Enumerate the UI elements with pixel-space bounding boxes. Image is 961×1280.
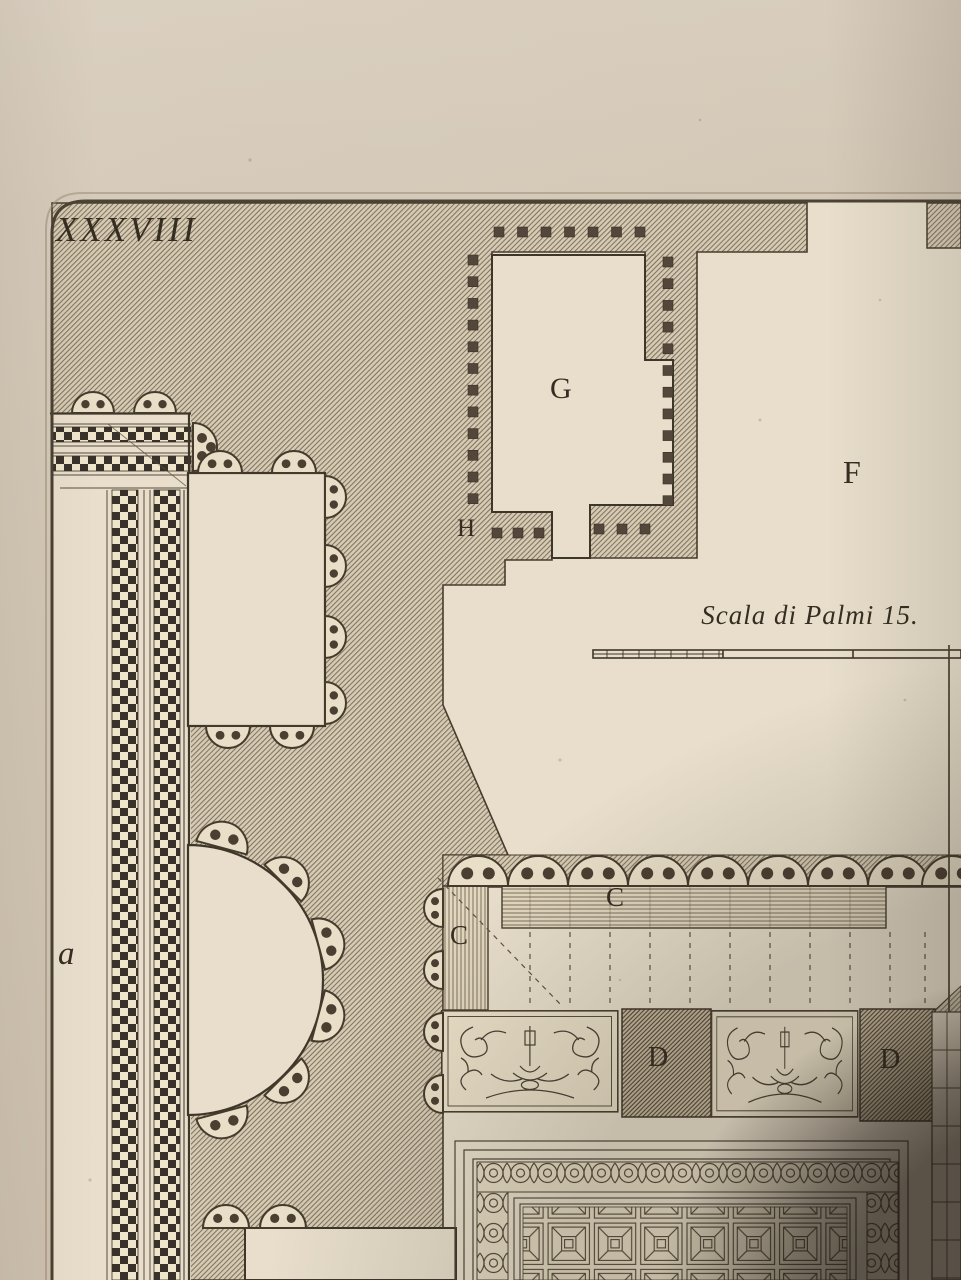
scale-bar xyxy=(593,650,961,658)
room-label-c-left: C xyxy=(450,922,468,949)
column-dot xyxy=(663,366,673,376)
mosaic-border-band xyxy=(52,456,191,471)
column-dot xyxy=(663,279,673,289)
room-label-f: F xyxy=(843,456,861,488)
column-dot xyxy=(513,528,523,538)
column-dot xyxy=(468,320,478,330)
room-label-c-band: C xyxy=(606,884,624,911)
column-dot xyxy=(617,524,627,534)
column-dot xyxy=(663,300,673,310)
ornament-panel xyxy=(442,1011,618,1112)
column-dot xyxy=(468,472,478,482)
column-dot xyxy=(635,227,645,237)
column-dot xyxy=(612,227,622,237)
column-dot xyxy=(468,277,478,287)
column-dot xyxy=(663,387,673,397)
guilloche-band-left xyxy=(477,1192,508,1280)
side-room-outline xyxy=(188,473,325,726)
mosaic-border-band xyxy=(112,490,138,1280)
column-dot xyxy=(663,452,673,462)
column-dot xyxy=(663,409,673,419)
plate-number: XXXVIII xyxy=(56,212,197,247)
column-dot xyxy=(494,227,504,237)
room-label-g: G xyxy=(550,374,572,404)
column-dot xyxy=(541,227,551,237)
room-label-d-right: D xyxy=(880,1046,900,1074)
c-horizontal-band xyxy=(502,884,886,928)
column-dot xyxy=(663,496,673,506)
column-dot xyxy=(468,255,478,265)
ornament-panel xyxy=(712,1011,858,1117)
column-dot xyxy=(663,257,673,267)
column-dot xyxy=(468,494,478,504)
column-dot xyxy=(663,344,673,354)
corridor-portico xyxy=(50,413,191,1280)
guilloche-band-right xyxy=(867,1192,898,1280)
column-dot xyxy=(663,322,673,332)
scale-caption: Scala di Palmi 15. xyxy=(660,602,960,629)
column-dot xyxy=(640,524,650,534)
column-dot xyxy=(565,227,575,237)
bottom-left-room xyxy=(245,1228,456,1280)
photographed-engraving-page: { "artwork": { "plate_number": "XXXVIII"… xyxy=(0,0,961,1280)
coffer-mosaic-floor xyxy=(455,1141,908,1280)
corridor-label-a: a xyxy=(58,938,75,971)
column-dot xyxy=(492,528,502,538)
column-dot xyxy=(594,524,604,534)
architectural-plan-engraving xyxy=(0,0,961,1280)
room-label-h: H xyxy=(457,516,475,541)
column-dot xyxy=(468,450,478,460)
column-dot xyxy=(534,528,544,538)
column-dot xyxy=(468,298,478,308)
column-dot xyxy=(588,227,598,237)
column-dot xyxy=(468,342,478,352)
column-dot xyxy=(663,431,673,441)
coffer-grid xyxy=(523,1207,847,1280)
mosaic-border-band xyxy=(154,490,180,1280)
room-label-d-left: D xyxy=(648,1044,668,1072)
wall-pier-top-right xyxy=(927,203,961,248)
photo-stage: XXXVIII G F H C C D D a Scala di Palmi 1… xyxy=(0,0,961,1280)
column-dot xyxy=(663,474,673,484)
column-dot xyxy=(468,385,478,395)
guilloche-band-top xyxy=(477,1162,898,1192)
column-dot xyxy=(518,227,528,237)
column-dot xyxy=(468,407,478,417)
column-dot xyxy=(468,429,478,439)
column-dot xyxy=(468,364,478,374)
